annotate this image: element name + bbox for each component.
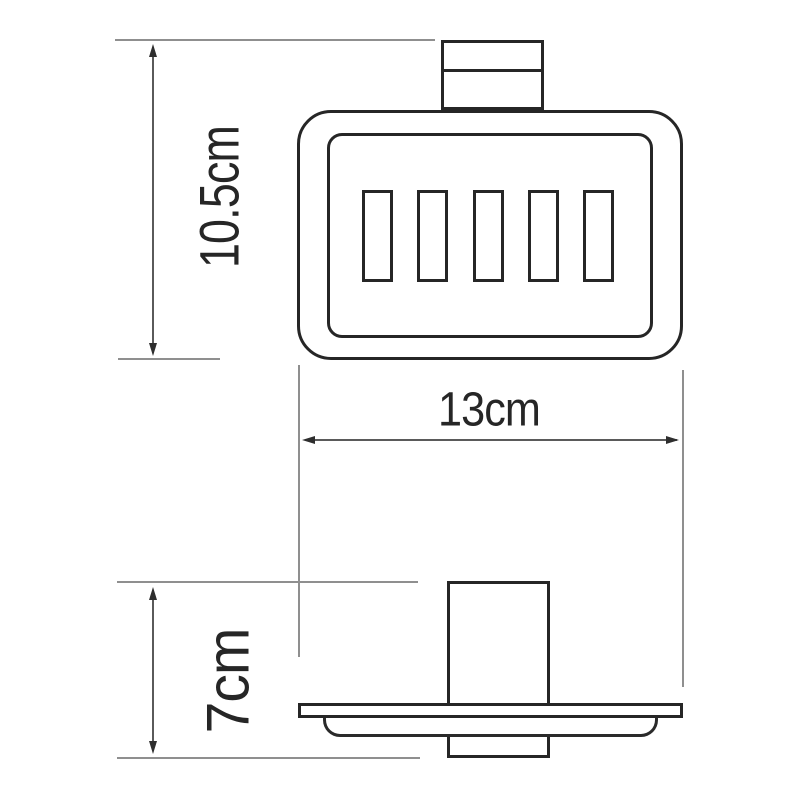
drain-slot-3 <box>473 190 504 282</box>
drain-slot-5 <box>583 190 614 282</box>
height-dimension-label: 10.5cm <box>187 126 252 268</box>
width-dimension-label: 13cm <box>438 383 540 438</box>
height-extension-line-bottom <box>118 358 220 360</box>
width-extension-line-left <box>298 365 300 657</box>
width-dimension-line <box>305 439 677 441</box>
depth-extension-line-bottom <box>117 757 420 759</box>
height-dimension-line <box>152 47 154 353</box>
dimension-drawing-canvas: 10.5cm 13cm 7cm <box>0 0 800 800</box>
shelf-plate-side-view <box>298 703 683 718</box>
depth-extension-line-top <box>117 581 418 583</box>
depth-arrow-up <box>149 587 157 600</box>
wall-mount-bracket <box>441 40 544 110</box>
height-extension-line-top <box>115 39 435 41</box>
drain-slot-4 <box>528 190 559 282</box>
width-extension-line-right <box>682 370 684 687</box>
depth-arrow-down <box>149 741 157 754</box>
depth-dimension-line <box>152 590 154 751</box>
width-arrow-right <box>666 436 679 444</box>
width-arrow-left <box>302 436 315 444</box>
height-arrow-down <box>149 343 157 356</box>
drain-slot-1 <box>362 190 393 282</box>
height-arrow-up <box>149 44 157 57</box>
drain-slot-2 <box>417 190 448 282</box>
depth-dimension-label: 7cm <box>194 629 263 734</box>
bracket-divider-line <box>444 69 541 72</box>
